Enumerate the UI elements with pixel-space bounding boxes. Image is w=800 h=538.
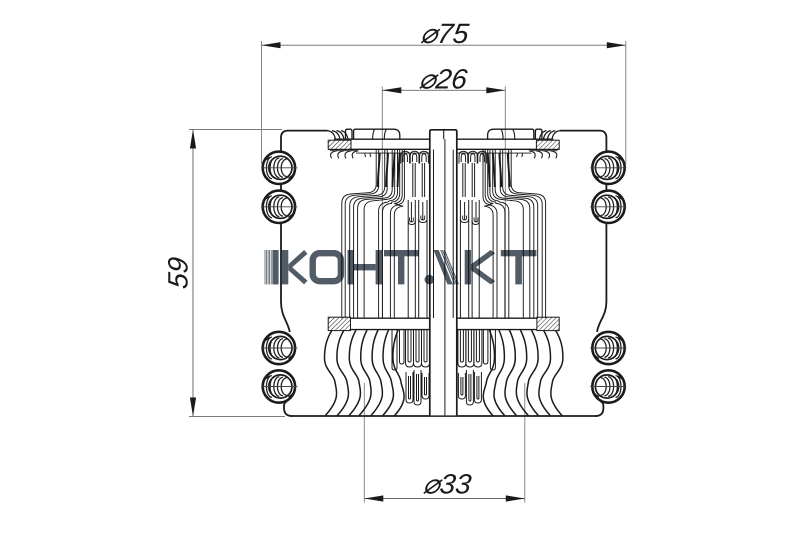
svg-text:⌀33: ⌀33 — [421, 469, 473, 500]
svg-text:59: 59 — [163, 255, 194, 290]
svg-text:⌀26: ⌀26 — [417, 64, 469, 95]
svg-text:⌀75: ⌀75 — [419, 18, 471, 49]
